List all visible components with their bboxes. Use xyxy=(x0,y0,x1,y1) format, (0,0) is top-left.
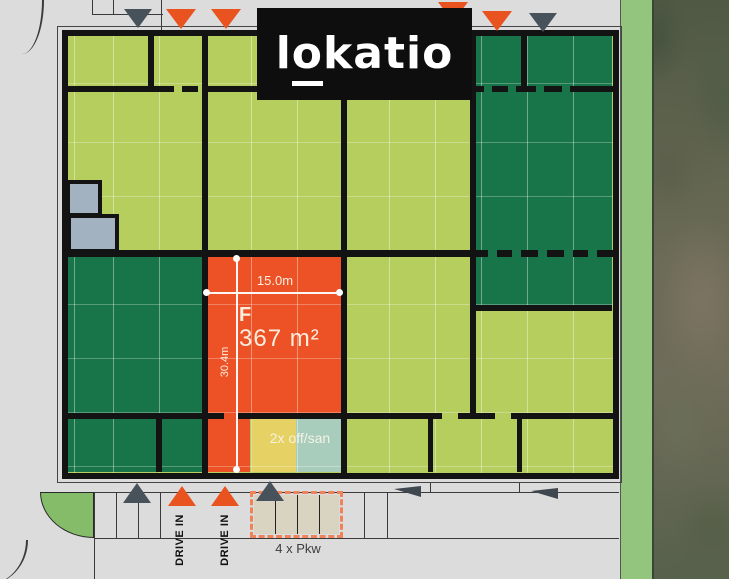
door-opening xyxy=(508,86,516,92)
door-opening xyxy=(442,413,458,419)
unit-area-label: 367 m² xyxy=(239,325,320,353)
aerial-photo xyxy=(652,0,729,579)
logo-letters: katio xyxy=(323,28,453,79)
drive-in-arrow-icon xyxy=(211,9,241,29)
unit-cell-dark-green xyxy=(527,36,612,86)
width-dimension-label: 15.0m xyxy=(230,273,320,288)
wall-segment xyxy=(202,36,208,473)
unit-cell-dark-green xyxy=(68,257,202,413)
door-opening xyxy=(536,86,544,92)
road-line xyxy=(113,0,114,14)
lane-direction-arrow-icon xyxy=(394,486,421,497)
parking-label: 4 x Pkw xyxy=(258,541,338,556)
unit-cell-dark-green xyxy=(476,92,612,305)
entry-arrow-gray-icon xyxy=(124,9,152,28)
unit-cell-dark-green xyxy=(162,419,202,472)
unit-f-entry-strip[interactable] xyxy=(208,413,250,472)
aerial-photo-texture xyxy=(652,0,729,579)
wall-segment xyxy=(156,419,162,472)
parking-stall-divider xyxy=(319,495,320,534)
road-line xyxy=(94,538,95,579)
parking-line xyxy=(160,492,161,538)
parking-line xyxy=(364,492,365,538)
site-plan: 15.0m 30.4m F 367 m² 2x off/san lokatio … xyxy=(0,0,729,579)
drive-in-label: DRIVE IN xyxy=(219,504,233,576)
road-line xyxy=(430,483,431,492)
road-curve xyxy=(0,540,28,579)
dimension-line-width xyxy=(207,292,341,294)
road-curve xyxy=(22,0,44,54)
dimension-endpoint-dot xyxy=(233,255,240,262)
road-line xyxy=(92,0,93,14)
door-opening xyxy=(512,250,521,257)
stairwell xyxy=(67,214,119,253)
parking-line xyxy=(94,492,95,538)
wall-segment xyxy=(521,36,527,86)
entry-arrow-gray-icon xyxy=(123,483,151,503)
green-verge xyxy=(620,0,652,579)
entry-arrow-gray-icon xyxy=(529,13,557,32)
office-sanitary-label: 2x off/san xyxy=(252,430,348,446)
door-opening xyxy=(562,86,570,92)
drive-in-arrow-icon xyxy=(168,486,196,506)
door-opening xyxy=(488,250,497,257)
lane-direction-arrow-icon xyxy=(531,488,558,499)
lokatio-logo: lokatio xyxy=(276,32,454,76)
door-opening xyxy=(495,413,511,419)
wall-segment xyxy=(341,36,347,473)
drive-in-arrow-icon xyxy=(211,486,239,506)
logo-letter-underlined: o xyxy=(292,28,323,86)
dimension-endpoint-dot xyxy=(203,289,210,296)
parking-line xyxy=(116,492,117,538)
drive-in-arrow-icon xyxy=(166,9,196,29)
drive-in-arrow-icon xyxy=(482,11,512,31)
logo-letter: l xyxy=(276,28,292,79)
drive-in-label: DRIVE IN xyxy=(174,504,188,576)
wall-segment xyxy=(476,305,612,311)
wall-segment xyxy=(428,419,433,472)
parking-line xyxy=(387,492,388,538)
depth-dimension-label: 30.4m xyxy=(219,327,231,397)
door-opening xyxy=(174,86,182,92)
grass-corner xyxy=(40,492,94,538)
wall-segment xyxy=(517,419,522,472)
door-opening xyxy=(564,250,573,257)
door-opening xyxy=(588,250,597,257)
entry-arrow-gray-icon xyxy=(256,481,284,501)
dimension-endpoint-dot xyxy=(336,289,343,296)
door-opening xyxy=(538,250,547,257)
stairwell xyxy=(66,180,102,217)
dimension-line-depth xyxy=(236,258,238,470)
road-line xyxy=(94,538,619,539)
unit-cell-dark-green xyxy=(476,36,521,86)
unit-code-label: F xyxy=(239,304,252,327)
wall-segment xyxy=(148,36,154,86)
logo-box: lokatio xyxy=(257,8,472,100)
door-opening xyxy=(484,86,492,92)
road-line xyxy=(519,483,520,492)
unit-cell-dark-green xyxy=(68,419,156,472)
parking-stall-divider xyxy=(297,495,298,534)
dimension-endpoint-dot xyxy=(233,466,240,473)
